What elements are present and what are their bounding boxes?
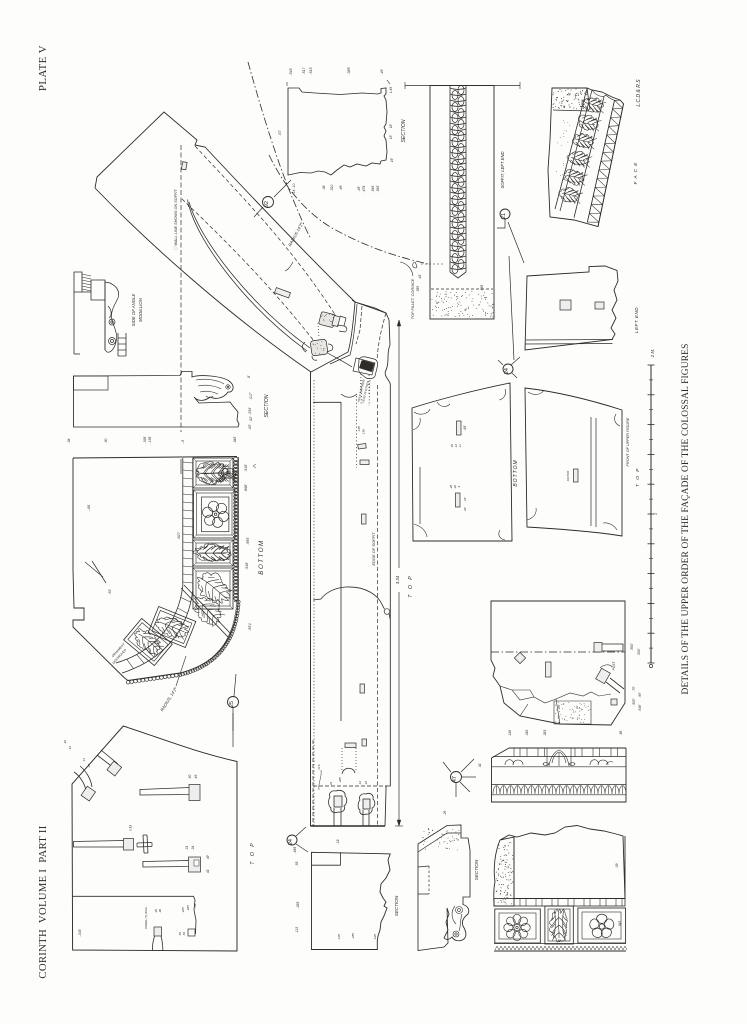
svg-text:16’: 16’ — [390, 158, 394, 163]
svg-text:T O P: T O P — [250, 841, 256, 865]
svg-text:ANCHOR: ANCHOR — [567, 471, 570, 483]
svg-text:.545: .545 — [371, 186, 375, 193]
svg-text:.385: .385 — [338, 777, 342, 783]
svg-text:.233’: .233’ — [248, 407, 252, 415]
svg-text:F A C E: F A C E — [633, 162, 638, 185]
svg-text:41’: 41’ — [206, 869, 210, 874]
svg-text:.927: .927 — [177, 531, 181, 539]
svg-text:.345: .345 — [233, 437, 237, 444]
svg-text:.474: .474 — [362, 186, 366, 193]
svg-text:61’: 61’ — [575, 705, 579, 709]
svg-text:.017’: .017’ — [249, 392, 253, 400]
svg-text:.517: .517 — [302, 67, 306, 75]
svg-text:.265: .265 — [296, 902, 300, 909]
svg-text:22’: 22’ — [463, 507, 467, 512]
svg-text:SECTION: SECTION — [401, 119, 407, 142]
svg-text:BOTTOM: BOTTOM — [258, 539, 265, 574]
svg-text:-.02: -.02 — [193, 903, 197, 908]
svg-text:SECTION: SECTION — [394, 895, 399, 916]
svg-text:25: 25 — [229, 701, 235, 707]
svg-text:SECTION: SECTION — [264, 394, 270, 417]
svg-text:.50: .50 — [188, 775, 192, 780]
svg-text:.18: .18 — [336, 840, 340, 845]
svg-text:CORINTH VOLUME I PART II: CORINTH VOLUME I PART II — [37, 825, 49, 978]
svg-text:.545: .545 — [618, 921, 622, 927]
svg-text:21: 21 — [501, 213, 507, 219]
svg-text:.45: .45 — [357, 187, 361, 192]
svg-text:.598: .598 — [480, 285, 484, 291]
svg-text:LEFT END: LEFT END — [634, 307, 639, 333]
svg-text:.318: .318 — [525, 730, 529, 736]
svg-text:-.06: -.06 — [87, 504, 91, 511]
svg-text:49’: 49’ — [206, 855, 210, 860]
svg-text:1: 1 — [654, 513, 658, 515]
svg-text:.285: .285 — [181, 907, 185, 913]
svg-text:.195: .195 — [148, 437, 152, 444]
svg-text:.14: .14 — [292, 190, 296, 195]
svg-text:.510’: .510’ — [244, 464, 248, 472]
svg-text:3.34: 3.34 — [395, 575, 400, 584]
svg-text:.383: .383 — [543, 730, 547, 736]
svg-text:.26: .26 — [443, 811, 447, 816]
svg-text:TOP FILLET, CORNICE: TOP FILLET, CORNICE — [411, 278, 415, 319]
svg-text:DETAILS OF THE UPPER ORDER OF: DETAILS OF THE UPPER ORDER OF THE FAÇADE… — [681, 344, 691, 695]
svg-text:.115: .115 — [295, 927, 299, 933]
svg-text:.11: .11 — [458, 444, 462, 448]
svg-text:.48: .48 — [418, 275, 422, 280]
svg-text:.10: .10 — [63, 740, 67, 744]
svg-text:L.C.D & R.S: L.C.D & R.S — [636, 79, 642, 107]
svg-text:.285: .285 — [351, 933, 355, 939]
svg-text:T O P: T O P — [635, 467, 641, 487]
svg-text:BOTTOM: BOTTOM — [513, 459, 519, 486]
svg-text:-.045: -.045 — [78, 929, 82, 936]
svg-text:.34: .34 — [191, 846, 195, 851]
svg-text:.95’: .95’ — [638, 692, 642, 697]
svg-text:24: 24 — [288, 839, 294, 845]
svg-text:.49: .49 — [339, 186, 343, 191]
svg-text:.195: .195 — [362, 429, 366, 435]
svg-text:01’: 01’ — [478, 763, 482, 768]
svg-text:16’: 16’ — [463, 497, 467, 501]
svg-text:-.9: -.9 — [181, 440, 185, 444]
svg-text:T O P: T O P — [408, 574, 414, 598]
svg-text:.38: .38 — [322, 186, 326, 191]
svg-text:.310: .310 — [330, 185, 334, 192]
svg-text:.33: .33 — [329, 782, 333, 787]
svg-text:.595’: .595’ — [246, 537, 250, 545]
svg-text:.545: .545 — [289, 69, 293, 76]
svg-text:.31: .31 — [185, 846, 189, 851]
svg-text:.62’: .62’ — [249, 416, 253, 422]
svg-text:.63: .63 — [108, 590, 112, 595]
svg-text:.185: .185 — [357, 426, 361, 432]
svg-text:.75’: .75’ — [632, 686, 636, 691]
svg-text:92: 92 — [264, 201, 270, 207]
svg-text:.515: .515 — [309, 68, 313, 75]
svg-text:.13: .13 — [87, 764, 91, 768]
svg-text:.435: .435 — [373, 934, 377, 940]
svg-text:.34: .34 — [67, 439, 71, 444]
svg-text:.30: .30 — [104, 439, 108, 444]
svg-text:.86: .86 — [619, 731, 623, 736]
svg-text:.49: .49 — [380, 70, 384, 75]
svg-text:16’: 16’ — [389, 124, 393, 129]
svg-text:.560’: .560’ — [630, 643, 634, 650]
svg-text:.516’: .516’ — [245, 562, 249, 570]
svg-text:DOWEL (?) HOLE: DOWEL (?) HOLE — [144, 907, 148, 929]
svg-text:.55: .55 — [295, 862, 299, 867]
svg-text:15’: 15’ — [389, 135, 393, 140]
svg-text:.505’: .505’ — [632, 698, 636, 705]
svg-text:.565: .565 — [376, 186, 380, 193]
svg-text:MODILLION: MODILLION — [138, 297, 143, 322]
svg-text:.385: .385 — [347, 68, 351, 75]
svg-text:141’: 141’ — [557, 704, 561, 710]
svg-text:.11: .11 — [82, 758, 86, 762]
svg-text:.808’: .808’ — [244, 484, 248, 492]
svg-text:SOFFIT, LEFT END: SOFFIT, LEFT END — [500, 151, 505, 188]
svg-text:W 6: W 6 — [317, 764, 321, 769]
svg-text:.55’1: .55’1 — [248, 623, 252, 631]
svg-text:.500’: .500’ — [637, 648, 641, 655]
svg-text:.49’: .49’ — [463, 425, 467, 431]
svg-text:.105: .105 — [337, 934, 341, 940]
svg-text:.335: .335 — [143, 437, 147, 444]
svg-text:.118: .118 — [508, 730, 512, 736]
svg-text:47: 47 — [452, 776, 458, 782]
svg-text:.12: .12 — [68, 746, 72, 750]
svg-text:.49: .49 — [194, 775, 198, 780]
svg-text:L.49: L.49 — [389, 87, 393, 93]
svg-text:0’: 0’ — [247, 375, 251, 378]
svg-text:.265: .265 — [186, 905, 190, 911]
svg-text:EDGE OF SOFFIT: EDGE OF SOFFIT — [371, 532, 376, 566]
svg-text:.10: .10 — [364, 781, 368, 786]
svg-text:.30: .30 — [158, 909, 162, 913]
svg-text:24: 24 — [504, 368, 510, 374]
svg-text:SIDE OF ANGLE: SIDE OF ANGLE — [131, 294, 136, 327]
svg-text:⃝ WALL LINE SHOWS ON SOFFIT: ⃝ WALL LINE SHOWS ON SOFFIT — [173, 189, 178, 251]
svg-text:.67: .67 — [278, 129, 282, 135]
svg-text:.65’: .65’ — [248, 424, 252, 430]
svg-text:v.33: v.33 — [129, 825, 133, 831]
svg-text:2 M.: 2 M. — [650, 349, 655, 359]
svg-text:.445: .445 — [293, 847, 297, 854]
svg-text:.12: .12 — [358, 781, 362, 786]
svg-text:SECTION: SECTION — [474, 859, 479, 880]
svg-text:PLATE V: PLATE V — [37, 45, 49, 91]
svg-text:.39: .39 — [615, 864, 619, 869]
svg-text:.10: .10 — [292, 184, 296, 189]
svg-text:FRONT OF UPPER FIGURE: FRONT OF UPPER FIGURE — [626, 417, 630, 466]
svg-text:.52: .52 — [182, 932, 186, 936]
svg-text:.585: .585 — [416, 286, 420, 292]
svg-text:POST: POST — [612, 661, 616, 671]
svg-text:.546’: .546’ — [638, 704, 642, 711]
